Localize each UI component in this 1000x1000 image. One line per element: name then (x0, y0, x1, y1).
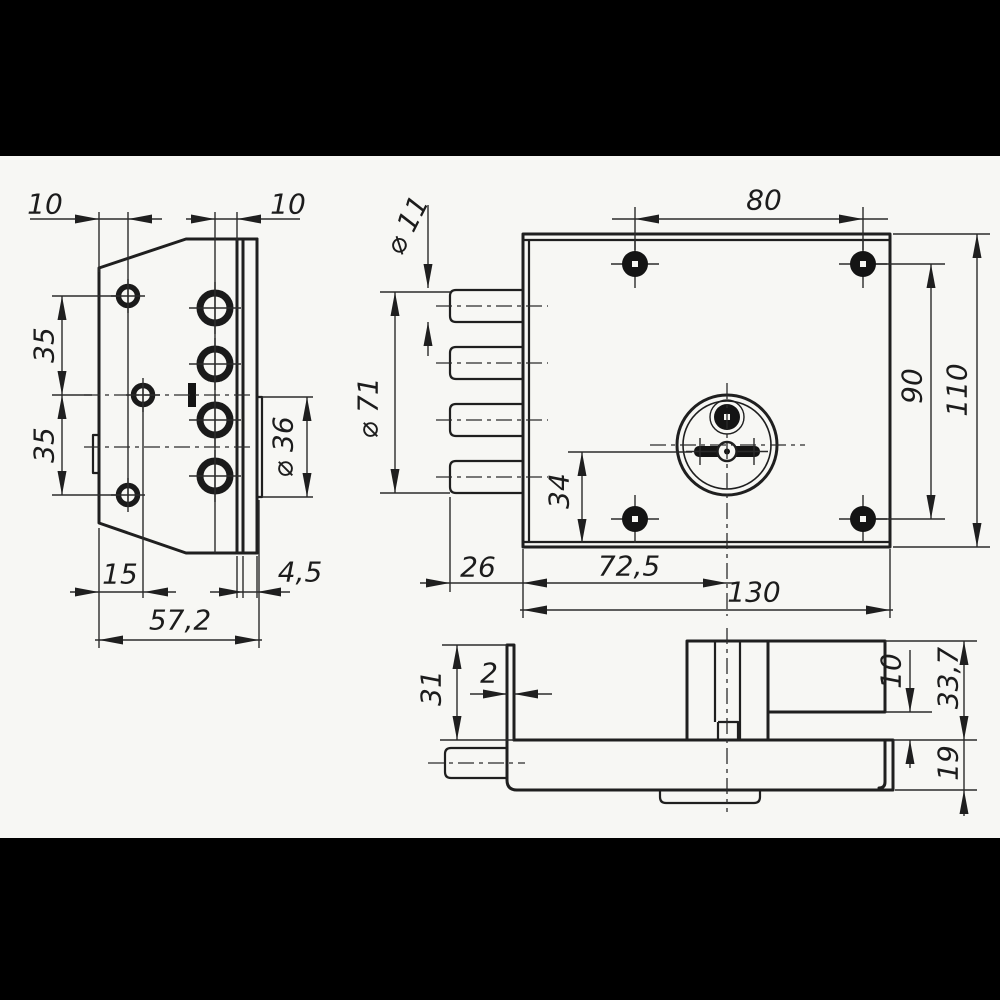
dim-bottom-19: 19 (932, 745, 965, 781)
dim-side-top-right: 10 (270, 188, 306, 221)
dim-front-34: 34 (543, 473, 576, 509)
dim-side-35-upper: 35 (28, 327, 61, 363)
dim-bottom-10: 10 (875, 653, 908, 689)
letterbox-bottom (0, 838, 1000, 1000)
dim-front-72-5: 72,5 (598, 550, 660, 583)
dim-bottom-31: 31 (415, 670, 448, 706)
bottom-view-tab (660, 790, 760, 803)
front-view-bolt-centerlines (436, 306, 548, 477)
dim-side-35-lower: 35 (28, 427, 61, 463)
dim-front-90: 90 (896, 368, 929, 404)
dim-side-57-2: 57,2 (149, 604, 211, 637)
bottom-view-cover-step (768, 641, 885, 712)
front-view-screw-bottom-left (611, 495, 659, 543)
side-view-faceplate (243, 239, 257, 553)
dim-bottom-2: 2 (480, 657, 498, 690)
screenshot-stage: 10 10 35 35 ⌀ 36 15 4,5 57,2 (0, 0, 1000, 1000)
front-view-body (523, 234, 890, 547)
dim-front-110: 110 (941, 363, 974, 416)
front-view: ⌀ 11 ⌀ 71 80 90 110 34 26 72,5 130 (352, 184, 991, 619)
dim-front-80: 80 (746, 184, 782, 217)
dim-side-4-5: 4,5 (278, 556, 323, 589)
letterbox-top (0, 0, 1000, 156)
dim-front-diameter-11: ⌀ 11 (378, 190, 435, 260)
dim-bottom-33-7: 33,7 (932, 647, 965, 710)
side-view-dim-lines (30, 219, 307, 640)
front-view-body-inner-edges (523, 240, 890, 542)
bottom-view: 31 2 10 33,7 19 (415, 628, 978, 816)
side-view: 10 10 35 35 ⌀ 36 15 4,5 57,2 (27, 188, 322, 649)
front-view-bolts (450, 290, 523, 493)
dim-front-diameter-71: ⌀ 71 (352, 377, 385, 438)
dim-side-top-left: 10 (27, 188, 63, 221)
bottom-view-faceplate (507, 645, 517, 790)
dim-front-130: 130 (727, 576, 780, 609)
dim-side-diameter-36: ⌀ 36 (267, 416, 300, 477)
dim-side-15: 15 (102, 558, 138, 591)
dim-front-26: 26 (460, 551, 496, 584)
bottom-view-case (514, 740, 893, 790)
